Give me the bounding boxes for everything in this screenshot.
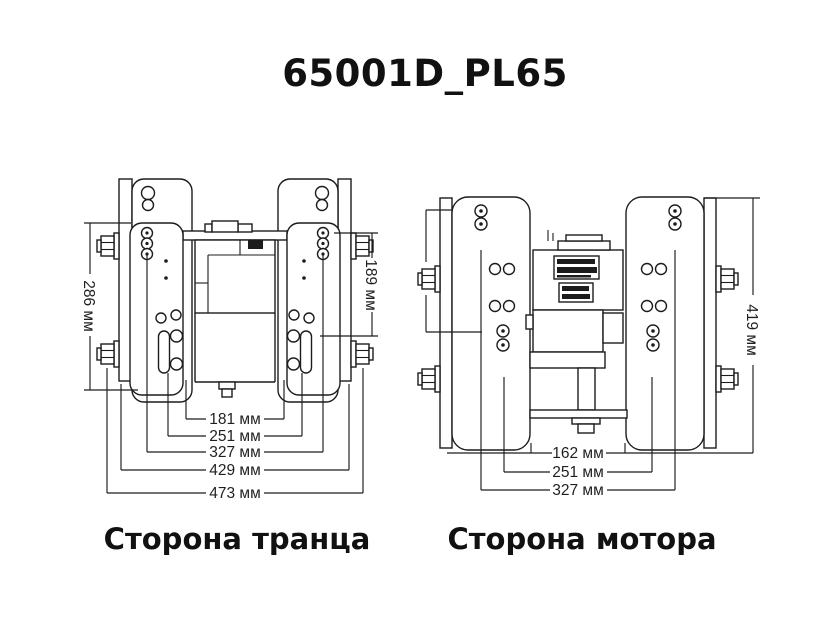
dim-label-181: 181 мм: [209, 411, 260, 428]
motor-view-caption: Сторона мотора: [447, 522, 716, 556]
motor-left-bar: [440, 198, 452, 448]
adjustment-slot-right: [301, 331, 312, 373]
adjustment-slot-left: [159, 331, 170, 373]
dim-label-419: 419 мм: [743, 304, 760, 355]
motor-view-drawing: 419 мм 162 мм 251 мм 327 мм: [418, 197, 760, 499]
dim-label-189: 189 мм: [362, 259, 379, 310]
dim-label-429: 429 мм: [209, 462, 260, 479]
page-title: 65001D_PL65: [282, 52, 568, 95]
transom-view-caption: Сторона транца: [104, 522, 371, 556]
dim-label-motor-327: 327 мм: [552, 482, 603, 499]
motor-cylinder: [526, 230, 627, 433]
cylinder-label-sticker: [554, 256, 599, 302]
dim-label-251: 251 мм: [209, 428, 260, 445]
transom-central-housing: [195, 240, 275, 397]
motor-right-bar: [704, 198, 716, 448]
dim-label-motor-251: 251 мм: [552, 464, 603, 481]
dim-label-162: 162 мм: [552, 445, 603, 462]
transom-view-drawing: 286 мм 189 мм 181 мм: [80, 179, 379, 502]
motor-plate-left: [452, 197, 530, 450]
dim-label-327: 327 мм: [209, 444, 260, 461]
motor-plate-right: [626, 197, 704, 450]
drawing-canvas: 65001D_PL65: [0, 0, 840, 617]
technical-drawing-page: 65001D_PL65: [0, 0, 840, 617]
dim-label-286: 286 мм: [80, 280, 97, 331]
dim-label-473: 473 мм: [209, 485, 260, 502]
